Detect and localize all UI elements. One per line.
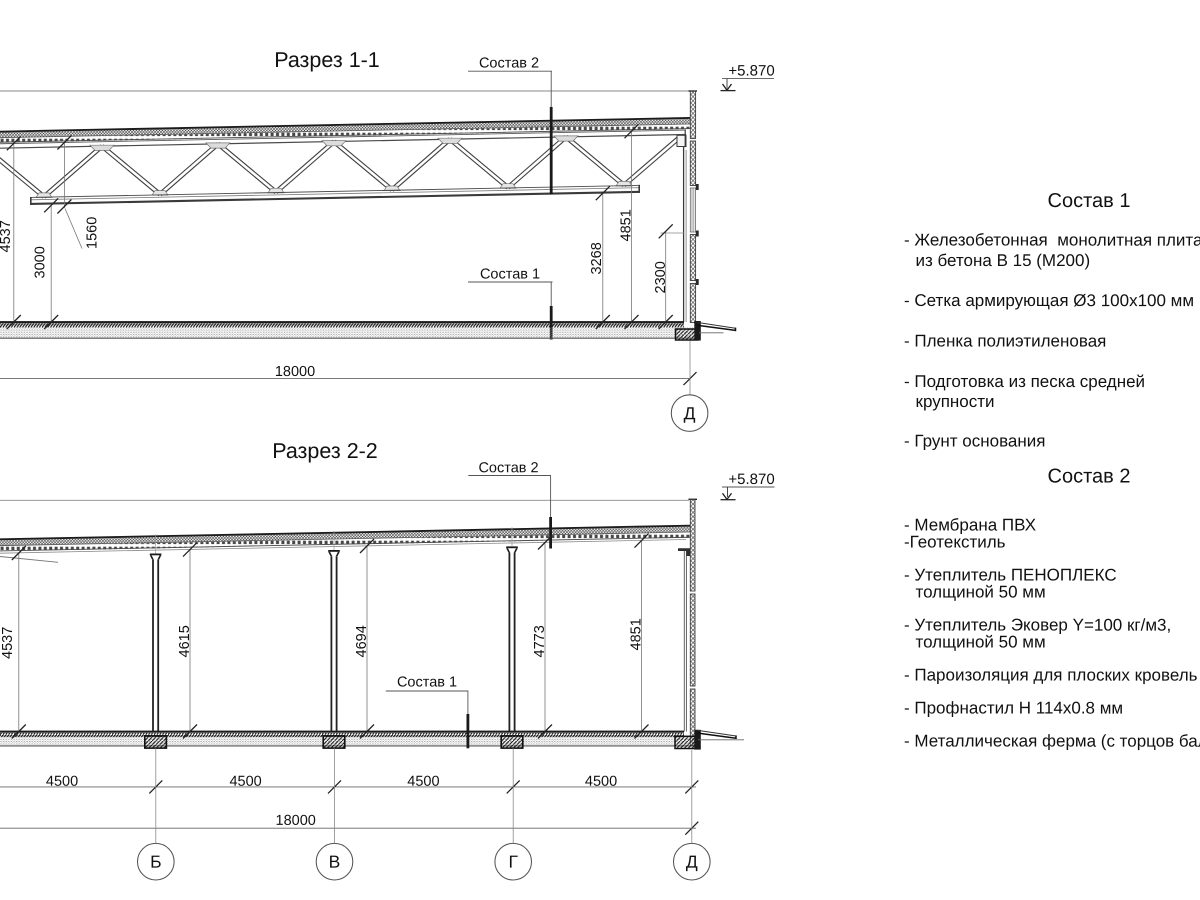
svg-text:Состав 1: Состав 1 [397,674,457,690]
svg-text:Г: Г [508,852,518,872]
svg-text:Б: Б [150,852,161,872]
svg-text:3000: 3000 [33,246,49,278]
svg-text:2300: 2300 [653,261,669,293]
svg-text:Разрез 1-1: Разрез 1-1 [274,48,380,72]
svg-text:1560: 1560 [85,217,101,249]
svg-text:- Сетка армирующая Ø3 100х100: - Сетка армирующая Ø3 100х100 мм [904,291,1194,310]
svg-text:- Пленка полиэтиленовая: - Пленка полиэтиленовая [904,332,1106,351]
svg-text:- Подготовка из песка средней: - Подготовка из песка средней [904,372,1145,391]
svg-text:4537: 4537 [0,220,14,252]
svg-text:18000: 18000 [275,364,315,380]
svg-text:4694: 4694 [354,625,370,657]
svg-text:- Грунт основания: - Грунт основания [904,432,1045,451]
svg-text:4537: 4537 [0,627,16,659]
svg-text:из бетона В 15 (М200): из бетона В 15 (М200) [915,251,1090,270]
svg-text:4500: 4500 [46,774,78,790]
svg-text:- Профнастил Н 114х0.8 мм: - Профнастил Н 114х0.8 мм [904,699,1123,718]
svg-text:18000: 18000 [276,813,316,829]
svg-text:В: В [329,852,341,872]
svg-text:Состав 2: Состав 2 [478,460,538,476]
svg-text:Д: Д [684,403,696,423]
svg-text:- Металлическая ферма (с торцо: - Металлическая ферма (с торцов бал [904,732,1200,751]
svg-text:-Геотекстиль: -Геотекстиль [904,533,1006,552]
svg-text:4500: 4500 [407,774,439,790]
svg-text:крупности: крупности [915,392,994,411]
svg-text:толщиной 50 мм: толщиной 50 мм [915,633,1045,652]
svg-text:+5.870: +5.870 [728,471,774,488]
svg-text:3268: 3268 [589,242,605,274]
svg-text:4851: 4851 [628,618,644,650]
svg-text:4500: 4500 [585,774,617,790]
svg-text:+5.870: +5.870 [728,62,774,79]
svg-text:толщиной 50 мм: толщиной 50 мм [915,583,1045,602]
svg-text:4500: 4500 [229,774,261,790]
svg-text:Состав 2: Состав 2 [479,55,539,71]
svg-text:4773: 4773 [532,625,548,657]
svg-text:Состав 2: Состав 2 [1048,465,1131,487]
svg-text:Д: Д [686,852,698,872]
svg-text:- Железобетонная монолитная п: - Железобетонная монолитная плита [904,231,1200,250]
svg-text:Разрез 2-2: Разрез 2-2 [272,439,378,463]
svg-text:4615: 4615 [177,625,193,657]
svg-text:- Пароизоляция для плоских кро: - Пароизоляция для плоских кровель [904,666,1198,685]
svg-text:Состав 1: Состав 1 [1048,190,1131,212]
svg-text:4851: 4851 [619,209,635,241]
svg-text:Состав 1: Состав 1 [480,266,540,282]
